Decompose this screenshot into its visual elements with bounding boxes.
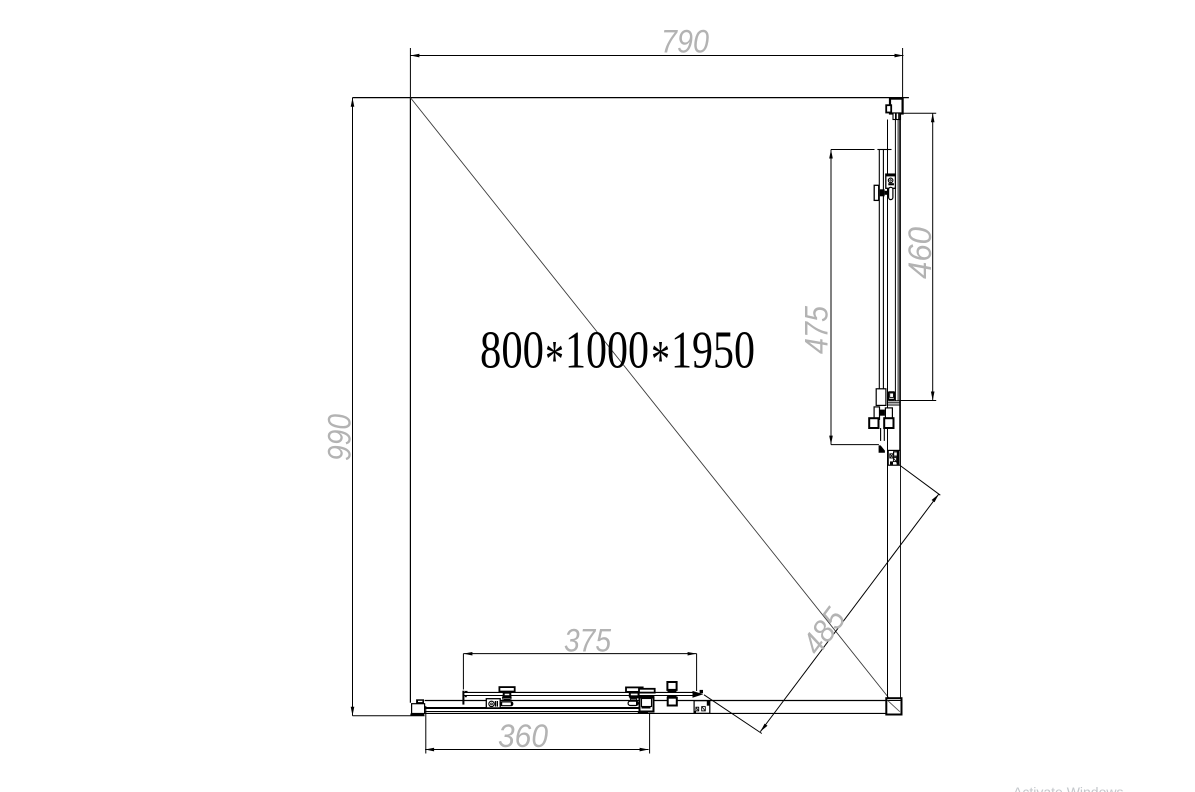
svg-text:375: 375	[564, 623, 611, 659]
svg-text:475: 475	[799, 306, 835, 354]
svg-text:1000: 1000	[565, 322, 649, 380]
svg-text:*: *	[651, 331, 670, 389]
svg-text:800: 800	[480, 322, 544, 380]
svg-text:360: 360	[498, 718, 548, 754]
svg-text:*: *	[545, 331, 564, 389]
svg-text:460: 460	[902, 227, 938, 279]
svg-text:790: 790	[661, 24, 709, 60]
svg-text:1950: 1950	[671, 322, 755, 380]
svg-text:Activate Windows: Activate Windows	[1013, 784, 1123, 792]
svg-text:990: 990	[322, 414, 358, 461]
